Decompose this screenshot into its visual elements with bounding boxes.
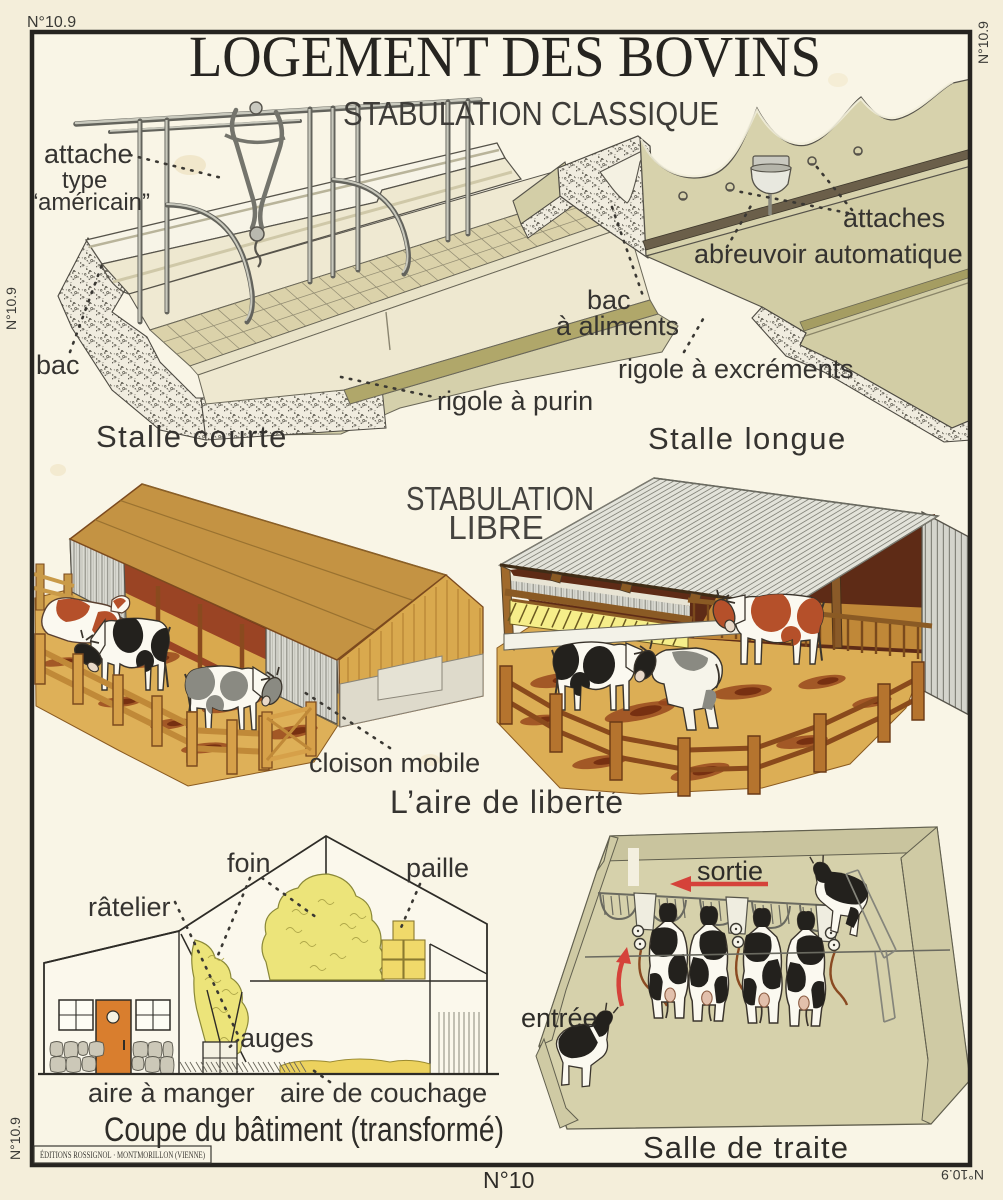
svg-text:N°10.9: N°10.9 [975,21,991,64]
svg-text:“américain”: “américain” [30,189,150,216]
svg-text:paille: paille [406,853,469,883]
svg-text:abreuvoir automatique: abreuvoir automatique [694,239,963,269]
svg-text:LIBRE: LIBRE [448,509,543,546]
svg-text:Stalle longue: Stalle longue [648,421,847,456]
svg-text:aire à manger: aire à manger [88,1078,255,1108]
svg-text:rigole à excréments: rigole à excréments [618,354,854,384]
svg-text:attache: attache [44,139,133,169]
svg-text:N°10.9: N°10.9 [7,1117,23,1160]
svg-text:entrée: entrée [521,1003,598,1033]
svg-text:Stalle courte: Stalle courte [96,419,288,454]
svg-text:sortie: sortie [697,856,763,886]
svg-text:N°10.9: N°10.9 [27,14,76,31]
svg-text:Salle de traite: Salle de traite [643,1130,848,1165]
svg-text:à aliments: à aliments [556,311,679,341]
svg-text:foin: foin [227,848,271,878]
svg-text:attaches: attaches [843,203,945,233]
svg-text:ÉDITIONS ROSSIGNOL · MONTMORIL: ÉDITIONS ROSSIGNOL · MONTMORILLON (VIENN… [40,1150,205,1160]
svg-text:bac: bac [36,350,80,380]
svg-text:auges: auges [240,1023,314,1053]
svg-text:rigole à purin: rigole à purin [437,386,593,416]
svg-text:aire de couchage: aire de couchage [280,1078,487,1108]
svg-text:STABULATION CLASSIQUE: STABULATION CLASSIQUE [343,95,719,132]
svg-text:Coupe du bâtiment (transfor: Coupe du bâtiment (transformé) [104,1111,504,1149]
svg-text:N°10: N°10 [483,1167,534,1193]
svg-text:N°10.9: N°10.9 [3,287,19,330]
svg-text:râtelier: râtelier [88,892,171,922]
svg-text:cloison mobile: cloison mobile [309,748,480,778]
svg-text:N°10.9: N°10.9 [941,1167,984,1183]
